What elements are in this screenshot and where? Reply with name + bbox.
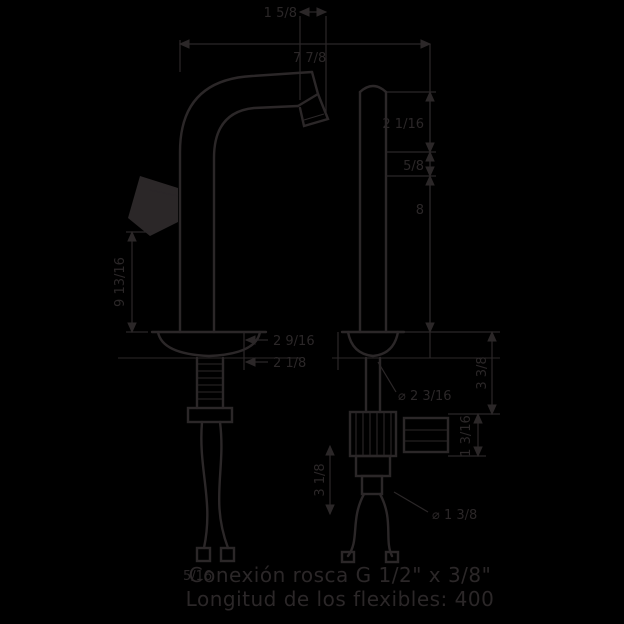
dim-base-b-label: 2 1/8 (273, 356, 306, 371)
dim-upper-right-label: 2 1/16 (382, 117, 424, 132)
side-base-flange (348, 332, 398, 356)
side-body-cap (360, 86, 386, 92)
dim-body-height-right-label: 8 (416, 203, 424, 218)
dim-spout-tip-width-label: 1 5/8 (264, 6, 297, 21)
dim-overall-width-label: 7 7/8 (293, 51, 326, 66)
faucet-dimension-drawing: 1 5/8 7 7/8 2 1/16 5/8 8 9 13/16 2 9/16 … (0, 0, 624, 624)
aerator (300, 94, 328, 126)
footnotes: Conexión rosca G 1/2" x 3/8" Longitud de… (60, 563, 620, 611)
dim-base-a-label: 2 9/16 (273, 334, 315, 349)
side-view-faucet (342, 86, 448, 562)
spout-tip (298, 72, 318, 106)
footnote-connection: Conexión rosca G 1/2" x 3/8" (60, 563, 620, 587)
threaded-shank (188, 358, 232, 422)
dim-right-offset-label: 3 3/8 (475, 356, 490, 389)
front-view-faucet (118, 72, 500, 561)
footnote-hose-length: Longitud de los flexibles: 400 (60, 587, 620, 611)
dim-shank-diameter-label: ⌀ 1 3/8 (432, 508, 477, 523)
flex-hoses-side (342, 494, 398, 562)
dim-spout-drop-label: 5/8 (403, 159, 424, 174)
handle-lever (128, 176, 178, 236)
spec-drawing-canvas: 1 5/8 7 7/8 2 1/16 5/8 8 9 13/16 2 9/16 … (0, 0, 624, 624)
dim-hose-drop-label: 3 1/8 (313, 463, 328, 496)
mounting-bracket (350, 412, 448, 456)
dimension-lines (126, 12, 500, 514)
dim-bracket-height-label: 1 3/16 (459, 415, 474, 457)
base-flange (158, 332, 260, 356)
dimension-labels: 1 5/8 7 7/8 2 1/16 5/8 8 9 13/16 2 9/16 … (113, 6, 490, 584)
locking-nut (356, 456, 390, 494)
flex-hoses-front (197, 422, 234, 561)
dim-height-left-label: 9 13/16 (113, 257, 128, 307)
dim-flange-diameter-label: ⌀ 2 3/16 (398, 389, 452, 404)
